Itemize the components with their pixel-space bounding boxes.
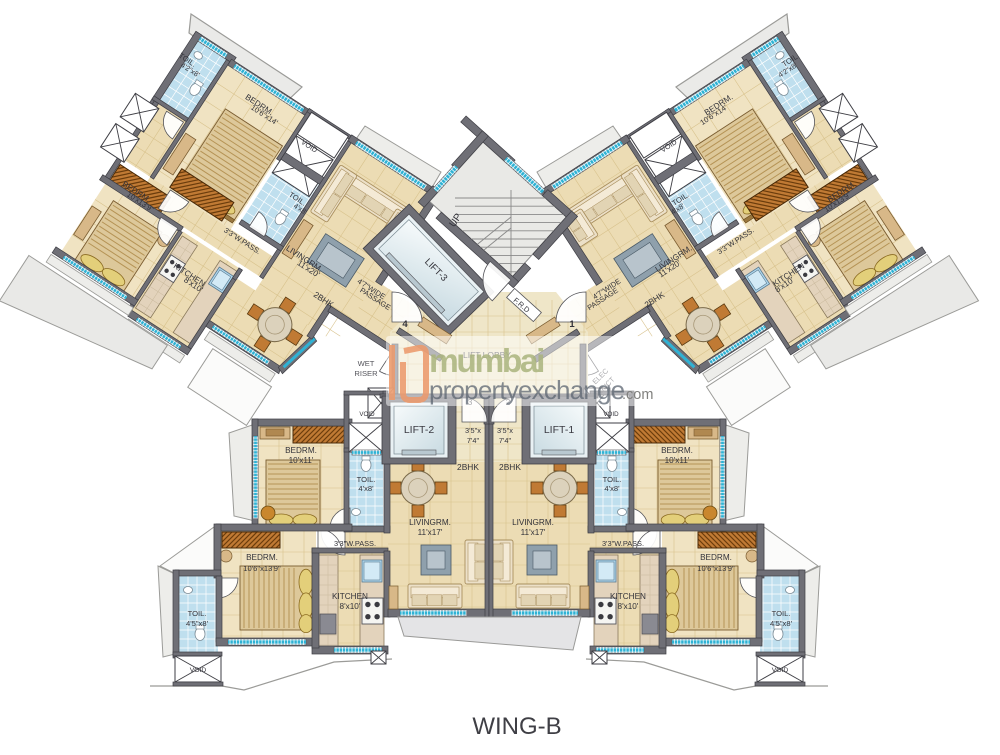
svg-text:4'5"x8': 4'5"x8' xyxy=(770,619,793,628)
svg-text:10'6"x13'9": 10'6"x13'9" xyxy=(697,564,735,573)
svg-text:LIFT-2: LIFT-2 xyxy=(404,424,435,436)
svg-text:10'6"x13'9": 10'6"x13'9" xyxy=(243,564,281,573)
svg-text:WING-B: WING-B xyxy=(472,713,561,740)
svg-text:2BHK: 2BHK xyxy=(499,462,521,472)
svg-text:RISER: RISER xyxy=(354,369,378,378)
svg-text:2BHK: 2BHK xyxy=(457,462,479,472)
svg-text:WET: WET xyxy=(358,359,375,368)
svg-text:VOID: VOID xyxy=(603,411,619,418)
svg-text:LIVINGRM.: LIVINGRM. xyxy=(409,518,451,527)
svg-text:4'x8': 4'x8' xyxy=(604,484,620,493)
svg-text:BEDRM.: BEDRM. xyxy=(285,446,317,455)
svg-text:11'x17': 11'x17' xyxy=(418,528,443,537)
svg-text:10'x11': 10'x11' xyxy=(289,456,314,465)
svg-text:BEDRM.: BEDRM. xyxy=(700,553,732,562)
svg-text:7'4": 7'4" xyxy=(467,436,480,445)
svg-text:VOID: VOID xyxy=(190,667,207,674)
svg-text:3'5"x: 3'5"x xyxy=(497,426,513,435)
svg-text:VOID: VOID xyxy=(359,411,375,418)
svg-text:TOIL.: TOIL. xyxy=(357,475,376,484)
svg-text:8'x10': 8'x10' xyxy=(618,602,639,611)
svg-text:BEDRM.: BEDRM. xyxy=(661,446,693,455)
svg-text:4'5"x8': 4'5"x8' xyxy=(186,619,209,628)
svg-text:LIFT-1: LIFT-1 xyxy=(544,424,575,436)
svg-text:3'5"x: 3'5"x xyxy=(465,426,481,435)
svg-text:8'x10': 8'x10' xyxy=(340,602,361,611)
svg-text:LIVINGRM.: LIVINGRM. xyxy=(512,518,554,527)
svg-text:TOIL.: TOIL. xyxy=(603,475,622,484)
svg-text:1: 1 xyxy=(569,319,575,330)
svg-text:3'3"W.PASS.: 3'3"W.PASS. xyxy=(602,539,644,548)
svg-text:4'x8': 4'x8' xyxy=(358,484,374,493)
svg-text:TOIL.: TOIL. xyxy=(188,609,207,618)
svg-text:propertyexchange: propertyexchange xyxy=(429,375,625,405)
svg-text:KITCHEN: KITCHEN xyxy=(610,592,646,601)
svg-text:11'x17': 11'x17' xyxy=(521,528,546,537)
svg-text:10'x11': 10'x11' xyxy=(665,456,690,465)
svg-text:.com: .com xyxy=(622,387,653,403)
svg-text:KITCHEN: KITCHEN xyxy=(332,592,368,601)
svg-text:TOIL.: TOIL. xyxy=(772,609,791,618)
svg-text:3'3"W.PASS.: 3'3"W.PASS. xyxy=(334,539,376,548)
svg-text:7'4": 7'4" xyxy=(499,436,512,445)
svg-text:VOID: VOID xyxy=(772,667,789,674)
svg-text:BEDRM.: BEDRM. xyxy=(246,553,278,562)
svg-text:4: 4 xyxy=(402,319,408,330)
